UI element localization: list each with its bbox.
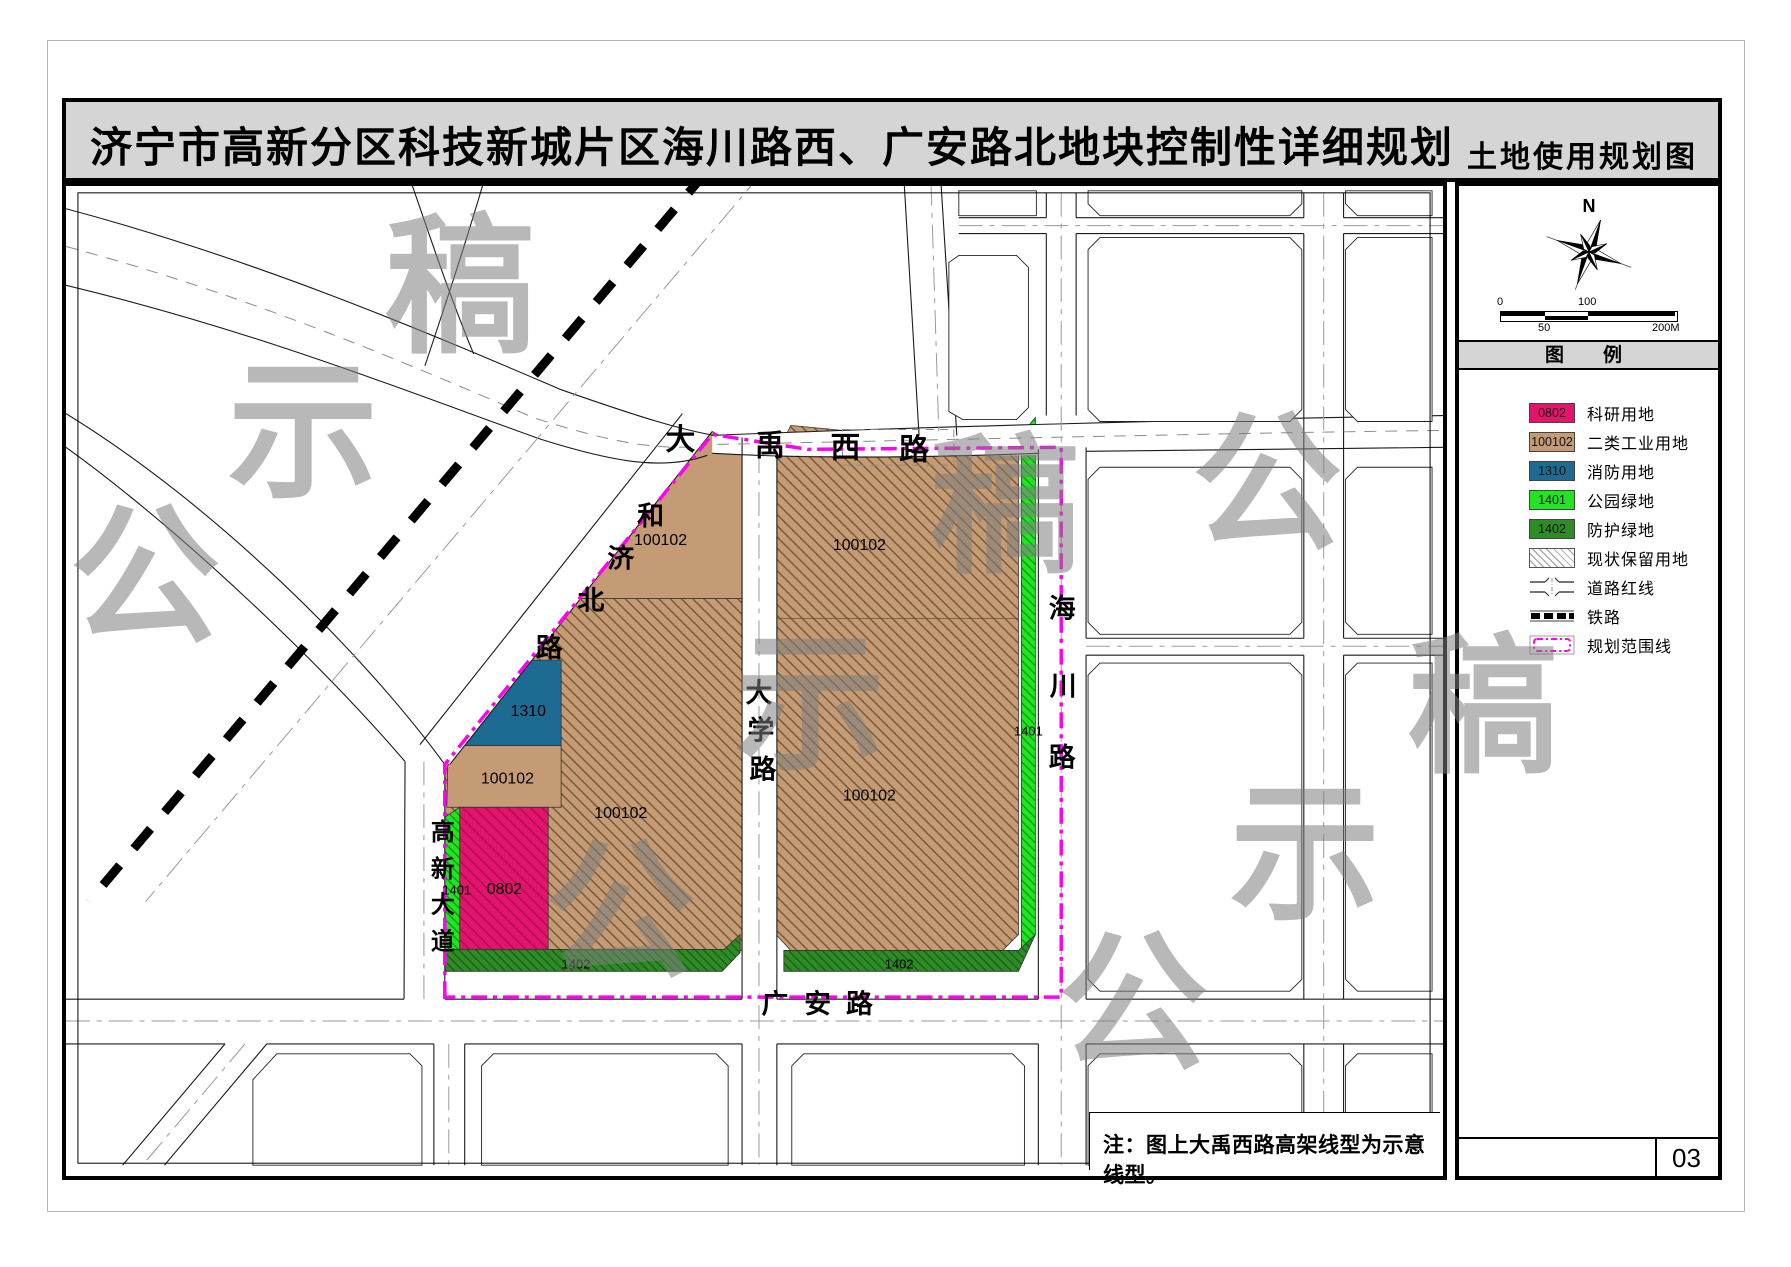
legend-label: 二类工业用地 — [1587, 430, 1689, 454]
parcel-code: 1310 — [511, 703, 547, 720]
road-label-char: 路 — [846, 988, 873, 1019]
parcel-code: 100102 — [843, 787, 896, 804]
parcel-research-0802 — [460, 807, 548, 951]
page-number: 03 — [1655, 1143, 1718, 1174]
legend-label: 公园绿地 — [1587, 488, 1655, 512]
parcel-code: 100102 — [481, 770, 534, 787]
road-label-char: 北 — [578, 585, 605, 615]
legend-row-retained: 现状保留用地 — [1459, 543, 1718, 572]
legend-swatch-railway — [1529, 606, 1575, 626]
footer-divider — [1459, 1137, 1718, 1139]
legend-swatch: 1401 — [1529, 490, 1575, 510]
legend-row-industrial: 100102 二类工业用地 — [1459, 427, 1718, 456]
parcel-code: 1401 — [1014, 724, 1043, 739]
parcel-code: 1402 — [885, 956, 914, 971]
road-label-char: 新 — [431, 855, 455, 883]
road-label-char: 广 — [761, 989, 788, 1019]
legend-label: 铁路 — [1587, 604, 1621, 628]
legend-row-boundary: 规划范围线 — [1459, 630, 1718, 659]
road-label-char: 安 — [804, 989, 831, 1019]
parcel-code: 0802 — [487, 881, 523, 898]
parcel-code: 100102 — [594, 805, 647, 822]
legend-row-fire: 1310 消防用地 — [1459, 456, 1718, 485]
road-label-char: 学 — [748, 715, 775, 746]
parcel-industrial-hatched-right — [777, 425, 1019, 950]
legend-row-protective: 1402 防护绿地 — [1459, 514, 1718, 543]
parcel-code: 1401 — [442, 883, 471, 898]
legend-label: 防护绿地 — [1587, 517, 1655, 541]
page-title: 济宁市高新分区科技新城片区海川路西、广安路北地块控制性详细规划 — [90, 114, 1454, 175]
legend-header: 图 例 — [1459, 340, 1718, 370]
map-frame: 大 禹 西 路 和 济 北 路 大 学 路 海 川 路 广 安 路 高 新 大 — [62, 182, 1447, 1180]
road-label-char: 川 — [1050, 671, 1077, 701]
road-label-char: 禹 — [755, 429, 785, 462]
legend-label: 消防用地 — [1587, 459, 1655, 483]
road-label-char: 道 — [431, 927, 455, 955]
legend-label: 现状保留用地 — [1587, 546, 1689, 570]
landuse-map: 大 禹 西 路 和 济 北 路 大 学 路 海 川 路 广 安 路 高 新 大 — [66, 186, 1443, 1176]
legend-swatch-hatch — [1529, 548, 1575, 568]
legend-row-railway: 铁路 — [1459, 601, 1718, 630]
legend-row-roadline: 道路红线 — [1459, 572, 1718, 601]
scale-tick: 50 — [1538, 322, 1550, 334]
scale-bar: 0 100 50 200M — [1500, 298, 1678, 332]
parcel-code: 1402 — [562, 956, 591, 971]
scale-tick: 0 — [1497, 296, 1503, 308]
legend-swatch: 1310 — [1529, 461, 1575, 481]
plan-sheet: 济宁市高新分区科技新城片区海川路西、广安路北地块控制性详细规划 土地使用规划图 — [0, 0, 1791, 1267]
scale-tick: 200M — [1652, 322, 1680, 334]
sheet-type-label: 土地使用规划图 — [1467, 132, 1698, 176]
north-label: N — [1582, 196, 1595, 216]
legend-panel: N 0 100 — [1455, 182, 1722, 1180]
legend-items: 0802 科研用地 100102 二类工业用地 1310 消防用地 1401 公… — [1459, 398, 1718, 659]
road-label-char: 海 — [1049, 593, 1076, 623]
road-label-char: 大 — [746, 678, 773, 708]
legend-row-park: 1401 公园绿地 — [1459, 485, 1718, 514]
road-label-char: 济 — [607, 544, 635, 574]
parcel-code: 100102 — [833, 537, 886, 554]
road-label-char: 大 — [666, 423, 696, 456]
road-label-char: 和 — [637, 501, 664, 531]
legend-label: 道路红线 — [1587, 575, 1655, 599]
legend-row-research: 0802 科研用地 — [1459, 398, 1718, 427]
green-strip-1401-right — [1021, 418, 1035, 951]
road-label-char: 路 — [899, 433, 929, 466]
note-text: 注：图上大禹西路高架线型为示意线型。 — [1103, 1129, 1440, 1189]
parcel-code: 100102 — [634, 532, 687, 549]
legend-label: 规划范围线 — [1587, 633, 1672, 657]
legend-swatch: 100102 — [1529, 432, 1575, 452]
legend-swatch: 0802 — [1529, 403, 1575, 423]
road-label-char: 路 — [536, 632, 563, 663]
scale-tick: 100 — [1578, 296, 1596, 308]
legend-swatch: 1402 — [1529, 519, 1575, 539]
legend-swatch-boundary — [1529, 635, 1575, 655]
road-label-char: 路 — [1049, 742, 1076, 773]
note-box: 注：图上大禹西路高架线型为示意线型。 — [1089, 1112, 1440, 1170]
legend-swatch-roadline — [1529, 577, 1575, 597]
title-band: 济宁市高新分区科技新城片区海川路西、广安路北地块控制性详细规划 土地使用规划图 — [62, 98, 1722, 182]
road-label-char: 路 — [750, 753, 777, 784]
legend-label: 科研用地 — [1587, 401, 1655, 425]
road-label-char: 西 — [831, 431, 861, 464]
road-label-char: 高 — [431, 818, 455, 846]
scale-bar-graphic — [1500, 311, 1678, 322]
